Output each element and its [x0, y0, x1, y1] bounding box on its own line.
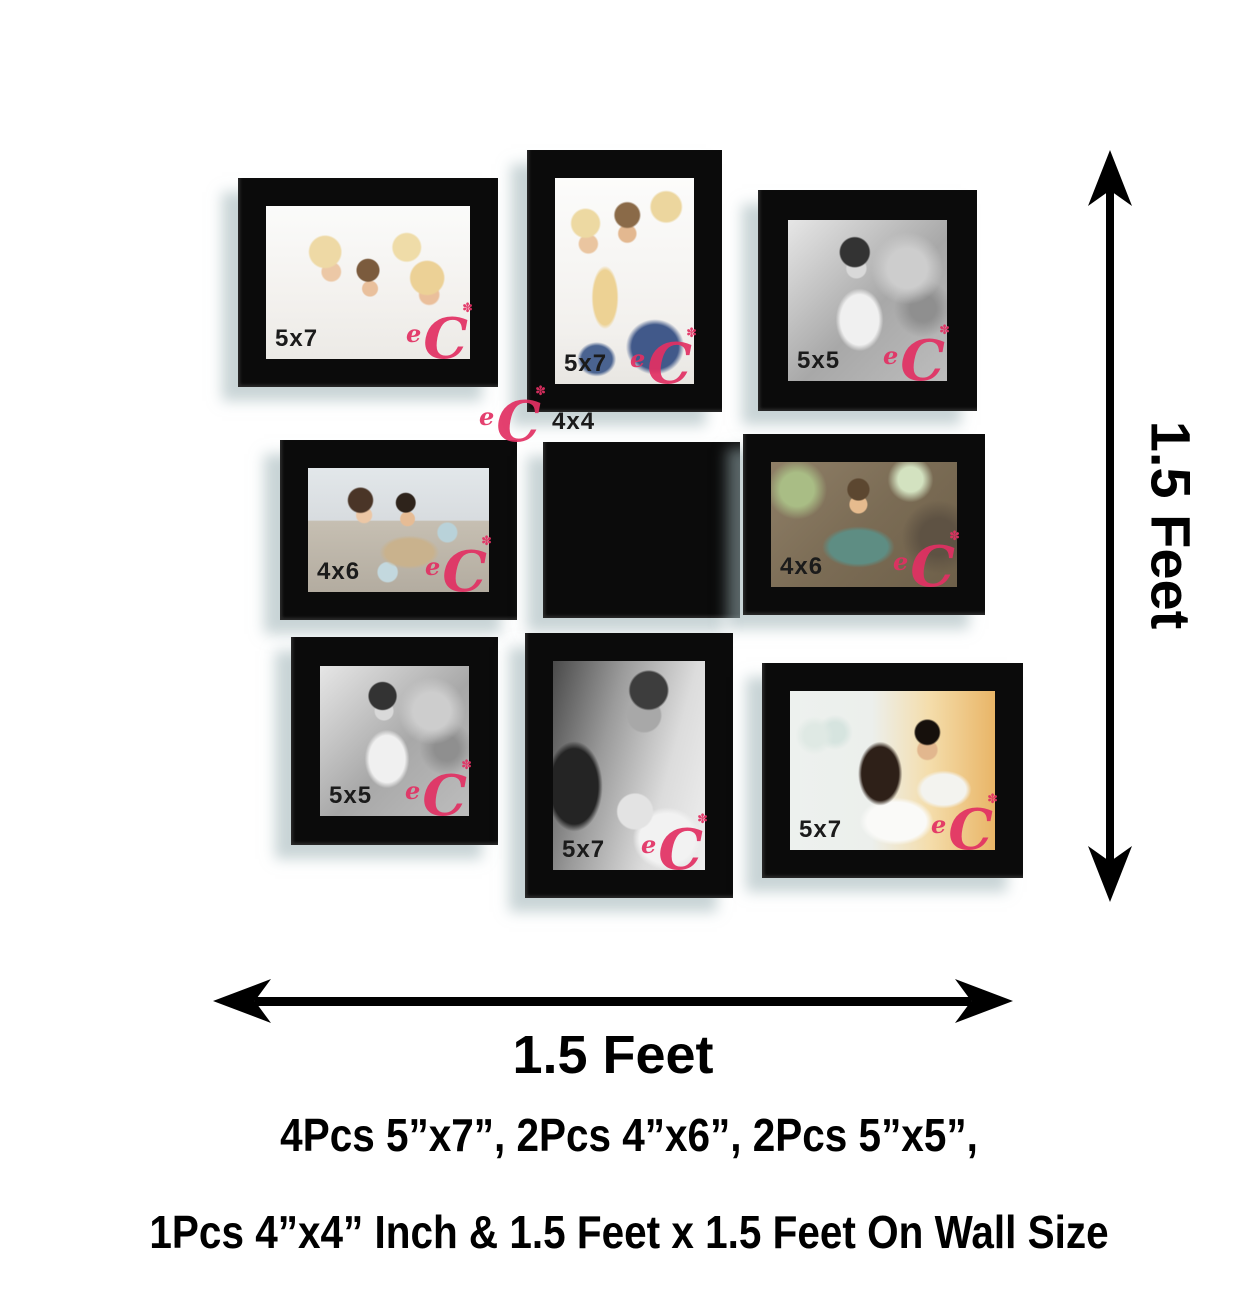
- horizontal-dimension-label: 1.5 Feet: [213, 1024, 1013, 1086]
- photo-family-of-four-on-bed: 5x7 eC✽: [266, 206, 470, 359]
- photo-parents-kissing-baby-black-and-white: 5x7 eC✽: [553, 661, 705, 870]
- frame-size-label: 5x7: [562, 838, 605, 862]
- logo-spark-icon: ✽: [939, 324, 950, 337]
- brand-logo-icon: eC✽: [403, 762, 469, 824]
- logo-letter-e: e: [405, 779, 420, 803]
- brand-logo-icon: eC✽: [477, 388, 543, 450]
- frame-5x5-bottom-left: 5x5 eC✽: [291, 637, 498, 845]
- logo-letter-c: C: [948, 802, 993, 858]
- logo-spark-icon: ✽: [481, 535, 492, 548]
- logo-spark-icon: ✽: [697, 813, 708, 826]
- frame-size-label: 4x4: [552, 410, 595, 434]
- photo-baby-black-and-white: 5x5 eC✽: [788, 220, 947, 381]
- frame-5x7-top-left: 5x7 eC✽: [238, 178, 498, 387]
- caption-line-2: 1Pcs 4”x4” Inch & 1.5 Feet x 1.5 Feet On…: [75, 1205, 1182, 1259]
- logo-spark-icon: ✽: [987, 793, 998, 806]
- brand-logo-icon: eC✽: [639, 816, 705, 878]
- frame-5x7-bottom-right: 5x7 eC✽: [762, 663, 1023, 878]
- frame-size-label: 5x7: [275, 327, 318, 351]
- photo-baby-black-and-white: 5x5 eC✽: [320, 666, 469, 816]
- logo-letter-c: C: [423, 311, 468, 367]
- horizontal-arrow-shaft: [255, 997, 971, 1006]
- logo-letter-c: C: [900, 333, 945, 389]
- logo-spark-icon: ✽: [461, 759, 472, 772]
- frame-size-label: 5x5: [329, 784, 372, 808]
- product-image: 5x7 eC✽ 5x7 eC✽ 5x5 eC✽ 4x6 eC✽ 4x4: [0, 0, 1258, 1305]
- logo-letter-e: e: [425, 555, 440, 579]
- brand-logo-icon: eC✽: [881, 327, 947, 389]
- logo-spark-icon: ✽: [686, 327, 697, 340]
- logo-letter-e: e: [931, 813, 946, 837]
- logo-letter-c: C: [647, 336, 692, 392]
- photo-family-of-four-seated: 5x7 eC✽: [555, 178, 694, 384]
- frame-size-label: 4x6: [317, 560, 360, 584]
- frame-size-label: 5x7: [799, 818, 842, 842]
- brand-logo-icon: eC✽: [423, 538, 489, 600]
- logo-letter-e: e: [883, 344, 898, 368]
- logo-letter-e: e: [630, 347, 645, 371]
- logo-letter-e: e: [893, 550, 908, 574]
- vertical-dimension-label: 1.5 Feet: [1139, 421, 1204, 630]
- caption-line-1: 4Pcs 5”x7”, 2Pcs 4”x6”, 2Pcs 5”x5”,: [75, 1108, 1182, 1162]
- photo-boy-climbing-tree: 4x6 eC✽: [771, 462, 957, 587]
- photo-couple-in-kitchen: 5x7 eC✽: [790, 691, 995, 850]
- horizontal-dimension-arrow: [213, 979, 1013, 1023]
- brand-logo-icon: eC✽: [628, 330, 694, 392]
- logo-letter-e: e: [479, 405, 494, 429]
- brand-logo-icon: eC✽: [891, 533, 957, 595]
- logo-letter-c: C: [658, 822, 703, 878]
- vertical-arrow-shaft: [1106, 190, 1114, 862]
- photo-couple-with-coffee-mugs: 4x6 eC✽: [308, 468, 489, 592]
- logo-letter-c: C: [422, 768, 467, 824]
- frame-4x6-middle-right: 4x6 eC✽: [743, 434, 985, 615]
- logo-spark-icon: ✽: [535, 385, 546, 398]
- frame-size-label: 5x5: [797, 349, 840, 373]
- logo-letter-e: e: [406, 322, 421, 346]
- logo-spark-icon: ✽: [949, 530, 960, 543]
- logo-letter-e: e: [641, 833, 656, 857]
- brand-logo-icon: eC✽: [929, 796, 995, 858]
- logo-letter-c: C: [910, 539, 955, 595]
- logo-letter-c: C: [442, 544, 487, 600]
- frame-size-label: 4x6: [780, 555, 823, 579]
- frame-5x7-bottom-center: 5x7 eC✽: [525, 633, 733, 898]
- brand-logo-icon: eC✽: [404, 305, 470, 367]
- logo-letter-c: C: [496, 394, 541, 450]
- frame-4x6-middle-left: 4x6 eC✽: [280, 440, 517, 620]
- frame-5x7-top-center: 5x7 eC✽: [527, 150, 722, 412]
- frame-size-label: 5x7: [564, 352, 607, 376]
- frame-4x4-middle-center: 4x4 eC✽: [543, 442, 740, 618]
- logo-spark-icon: ✽: [462, 302, 473, 315]
- frame-5x5-top-right: 5x5 eC✽: [758, 190, 977, 411]
- vertical-dimension-arrow: [1088, 150, 1132, 902]
